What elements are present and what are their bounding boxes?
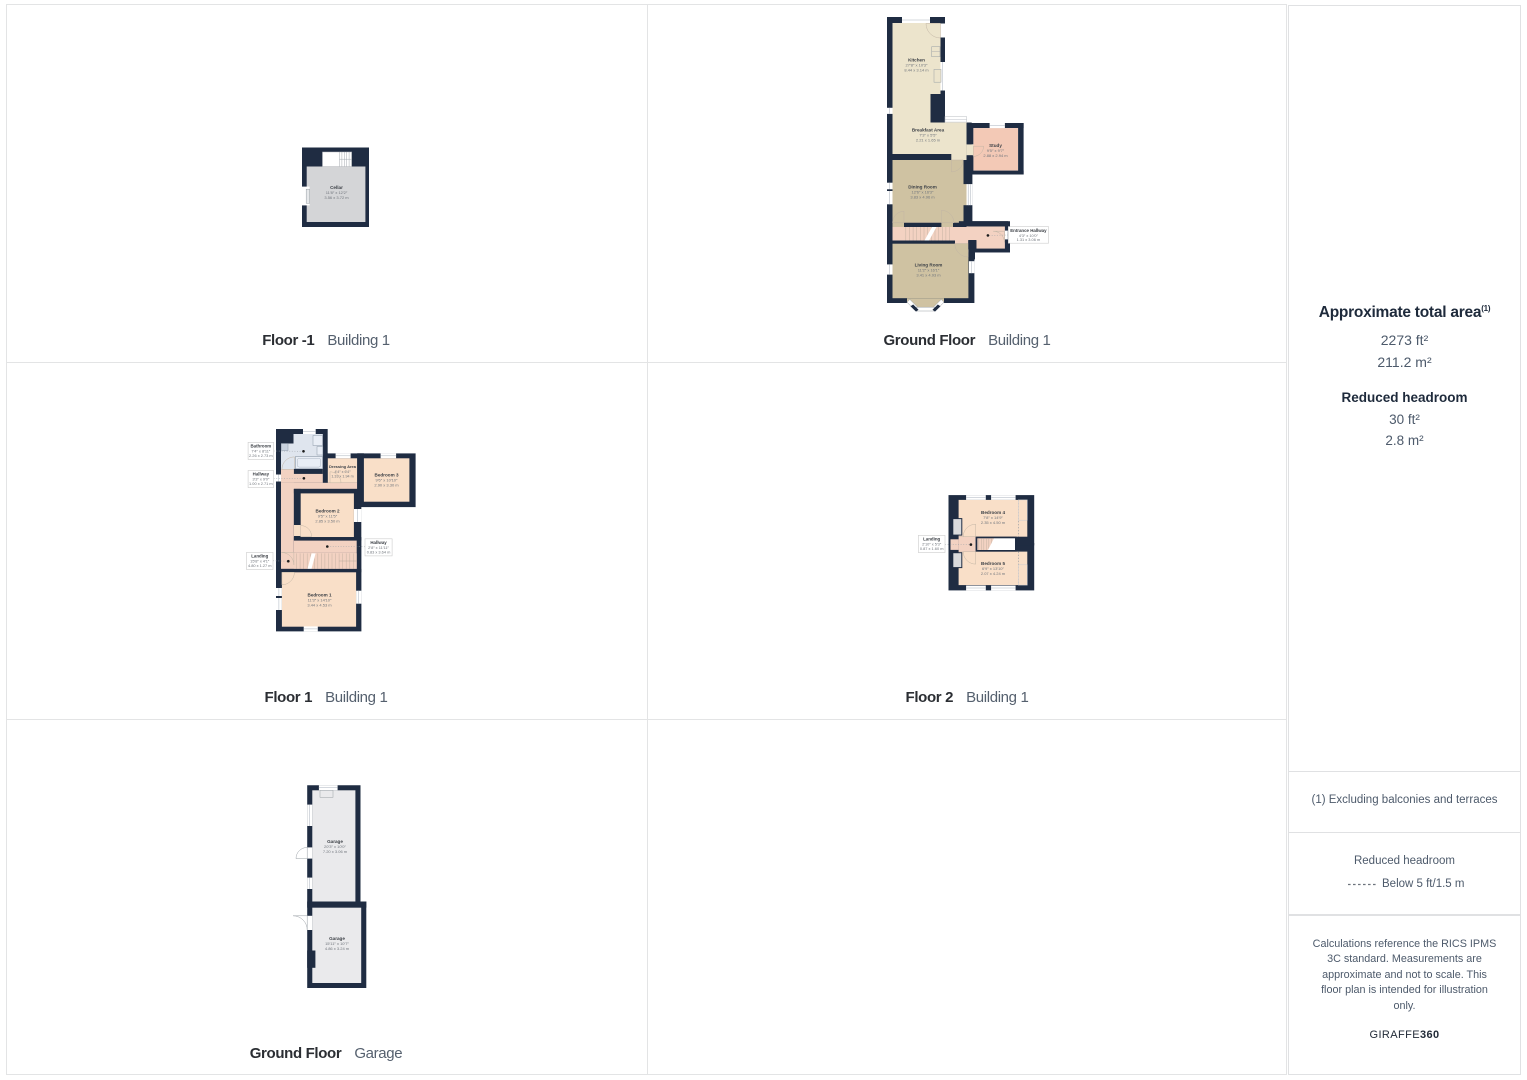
svg-text:1.00 x 2.71 m: 1.00 x 2.71 m <box>249 481 273 486</box>
svg-text:3.83 x 4.96 m: 3.83 x 4.96 m <box>910 195 935 200</box>
svg-text:8.44 x 3.14 m: 8.44 x 3.14 m <box>904 68 929 73</box>
svg-text:0.87 x 1.60 m: 0.87 x 1.60 m <box>920 546 944 551</box>
svg-text:1.31 x 3.06 m: 1.31 x 3.06 m <box>1017 237 1041 242</box>
svg-text:3.56 x 3.72 m: 3.56 x 3.72 m <box>324 195 349 200</box>
svg-text:0.83 x 3.64 m: 0.83 x 3.64 m <box>367 549 391 554</box>
svg-text:4.86 x 3.24 m: 4.86 x 3.24 m <box>325 946 350 951</box>
svg-text:4.80 x 1.27 m: 4.80 x 1.27 m <box>248 563 272 568</box>
svg-text:2.35 x 4.50 m: 2.35 x 4.50 m <box>981 520 1006 525</box>
svg-text:3.44 x 4.53 m: 3.44 x 4.53 m <box>307 603 332 608</box>
svg-text:2.88 x 2.94 m: 2.88 x 2.94 m <box>983 153 1008 158</box>
svg-text:Dressing Area: Dressing Area <box>329 464 357 469</box>
svg-text:3.41 x 4.93 m: 3.41 x 4.93 m <box>916 273 941 278</box>
svg-text:2.26 x 2.73 m: 2.26 x 2.73 m <box>249 453 273 458</box>
svg-text:2.07 x 4.24 m: 2.07 x 4.24 m <box>981 571 1006 576</box>
svg-text:7.20 x 3.06 m: 7.20 x 3.06 m <box>323 849 348 854</box>
svg-text:2.21 x 1.65 m: 2.21 x 1.65 m <box>916 138 941 143</box>
svg-text:4′4″ x 6′4″: 4′4″ x 6′4″ <box>334 470 351 474</box>
svg-text:2.85 x 3.50 m: 2.85 x 3.50 m <box>315 519 340 524</box>
svg-text:1.33 x 1.94 m: 1.33 x 1.94 m <box>331 474 353 478</box>
svg-text:2.90 x 3.30 m: 2.90 x 3.30 m <box>374 483 399 488</box>
